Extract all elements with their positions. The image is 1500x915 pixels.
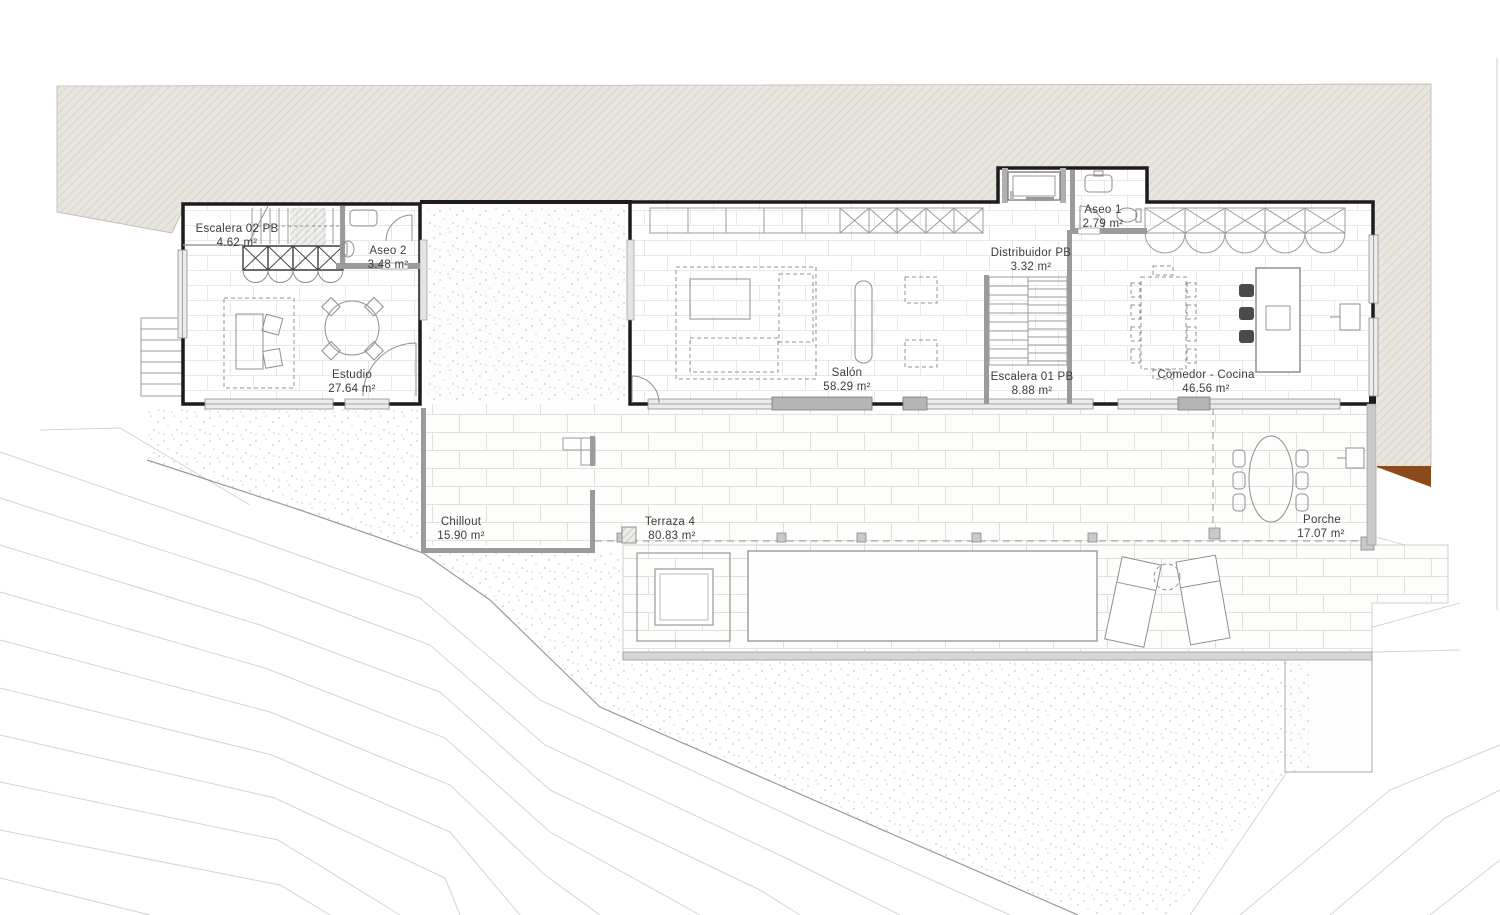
room-name: Terraza 4	[645, 516, 696, 528]
room-area: 3.48 m²	[368, 259, 409, 271]
courtyard	[420, 206, 634, 402]
jacuzzi	[637, 553, 730, 641]
bar-stool-icon	[1239, 330, 1254, 343]
terrace-edge-wall	[623, 652, 1372, 660]
room-area: 27.64 m²	[328, 383, 375, 395]
room-area: 58.29 m²	[823, 381, 870, 393]
room-name: Aseo 1	[1084, 204, 1121, 216]
room-area: 15.90 m²	[437, 530, 484, 542]
bar-stool-icon	[1239, 284, 1254, 297]
room-name: Escalera 02 PB	[196, 223, 279, 235]
terrace-column-marker	[622, 527, 636, 543]
floor-plan-drawing: Escalera 02 PB 4.62 m² Aseo 2 3.48 m² Es…	[0, 0, 1500, 915]
room-area: 4.62 m²	[217, 237, 258, 249]
elevator	[1002, 168, 1066, 203]
room-name: Aseo 2	[369, 245, 406, 257]
room-area: 17.07 m²	[1297, 528, 1344, 540]
room-name: Chillout	[441, 516, 482, 528]
room-area: 3.32 m²	[1011, 261, 1052, 273]
elevator-door-icon	[1026, 197, 1054, 201]
room-name: Salón	[832, 367, 863, 379]
floor-plan-canvas: Escalera 02 PB 4.62 m² Aseo 2 3.48 m² Es…	[0, 0, 1500, 915]
exterior-stair	[141, 318, 183, 396]
room-area: 46.56 m²	[1182, 383, 1229, 395]
room-area: 2.79 m²	[1083, 218, 1124, 230]
room-name: Estudio	[332, 369, 372, 381]
room-name: Porche	[1303, 514, 1341, 526]
room-name: Comedor - Cocina	[1157, 369, 1255, 381]
room-area: 8.88 m²	[1012, 385, 1053, 397]
porch-side-wall	[1367, 404, 1376, 545]
bar-stool-icon	[1239, 307, 1254, 320]
room-name: Distribuidor PB	[991, 247, 1072, 259]
room-area: 80.83 m²	[648, 530, 695, 542]
lower-terrace-extension	[1285, 660, 1372, 772]
room-name: Escalera 01 PB	[991, 371, 1074, 383]
swimming-pool	[748, 551, 1097, 641]
